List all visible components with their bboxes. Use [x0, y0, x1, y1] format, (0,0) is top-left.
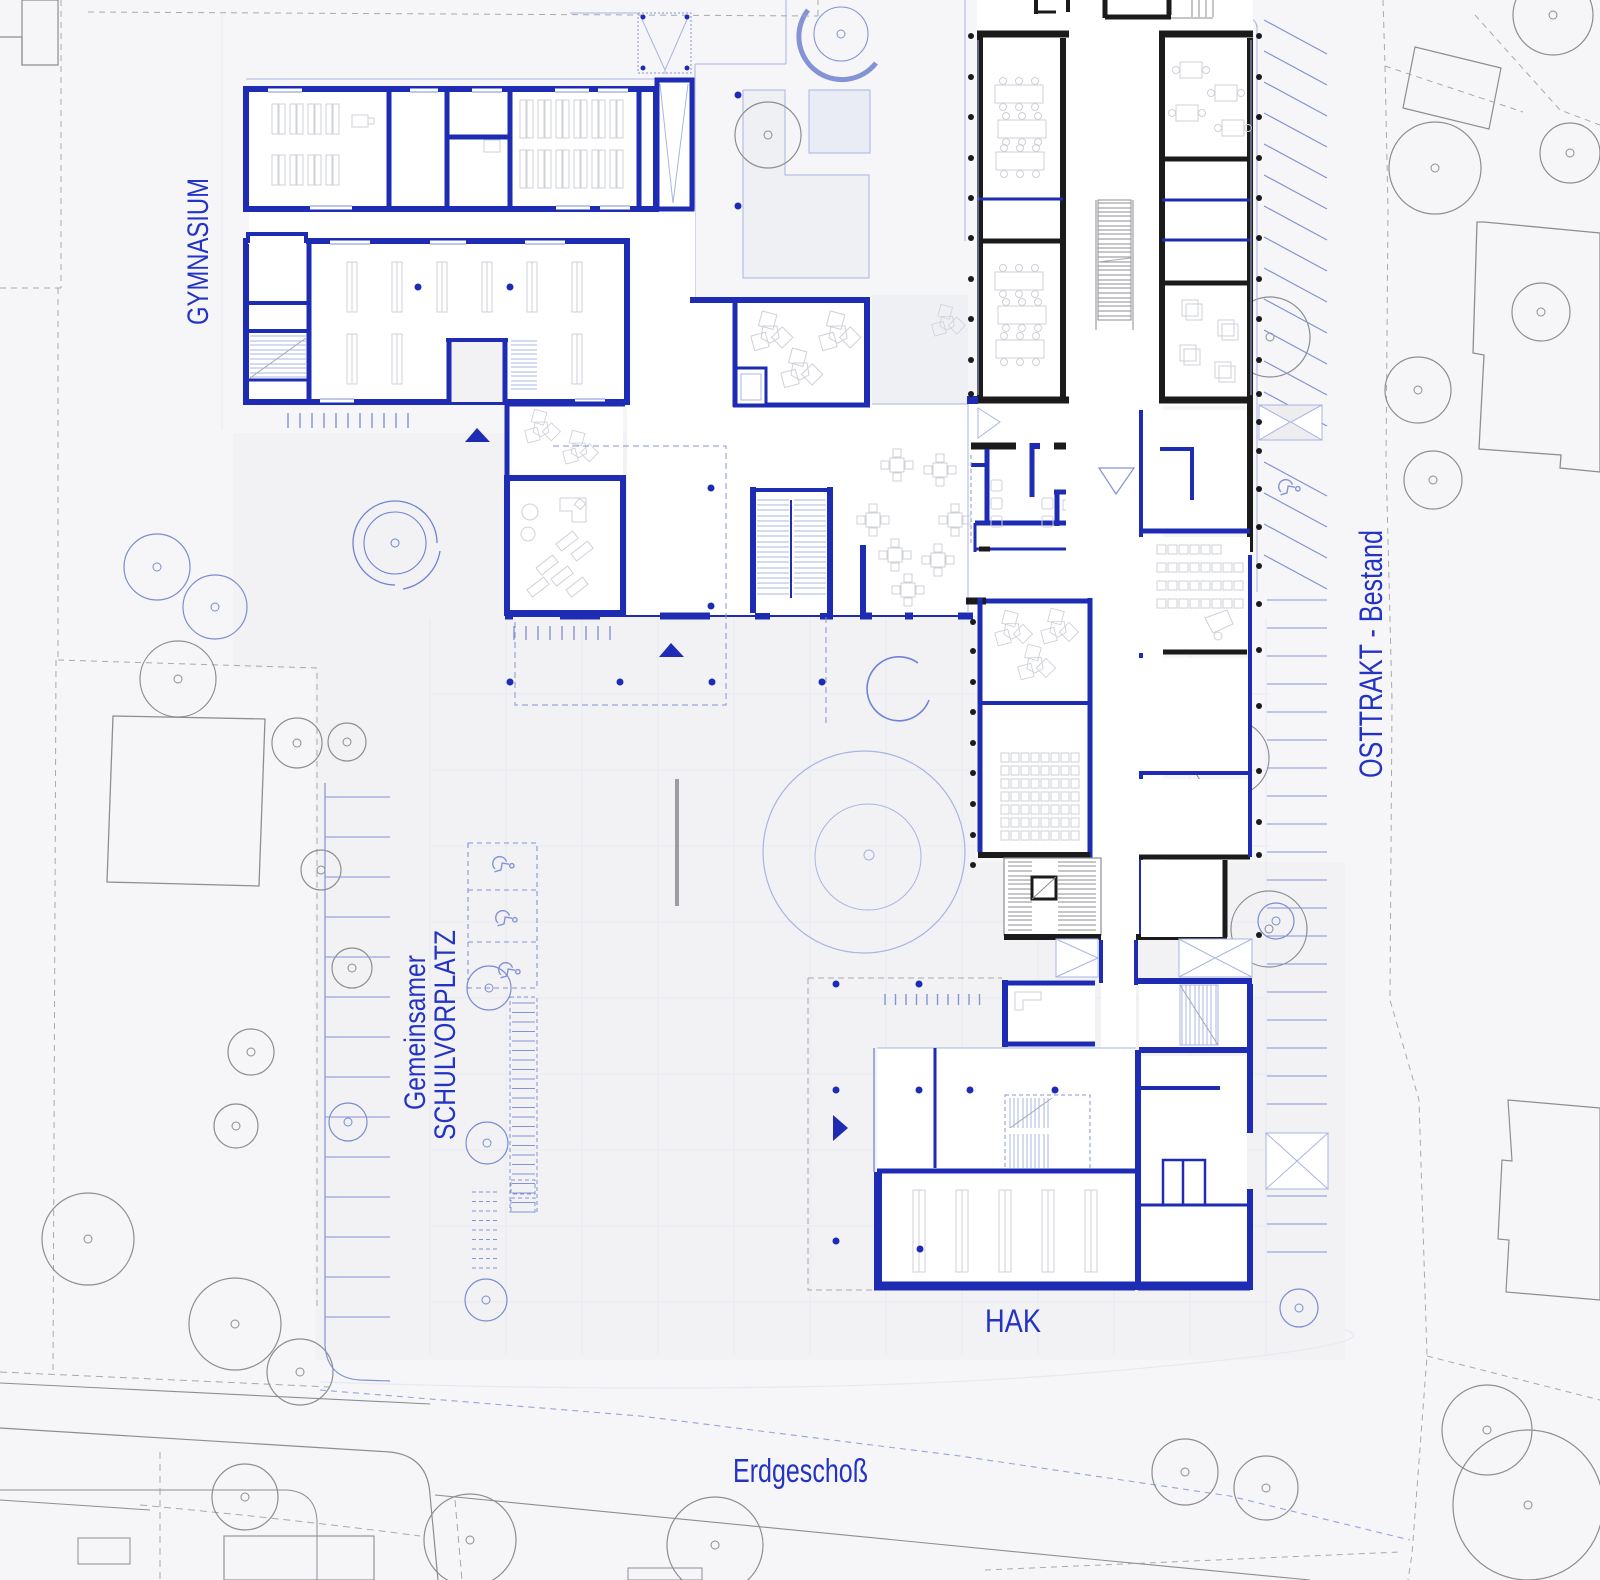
- svg-text:Erdgeschoß: Erdgeschoß: [733, 1452, 868, 1489]
- svg-text:HAK: HAK: [985, 1303, 1041, 1339]
- svg-text:SCHULVORPLATZ: SCHULVORPLATZ: [429, 930, 462, 1140]
- svg-text:Gemeinsamer: Gemeinsamer: [399, 955, 432, 1110]
- svg-text:GYMNASIUM: GYMNASIUM: [182, 178, 215, 325]
- svg-text:OSTTRAKT - Bestand: OSTTRAKT - Bestand: [1353, 530, 1389, 778]
